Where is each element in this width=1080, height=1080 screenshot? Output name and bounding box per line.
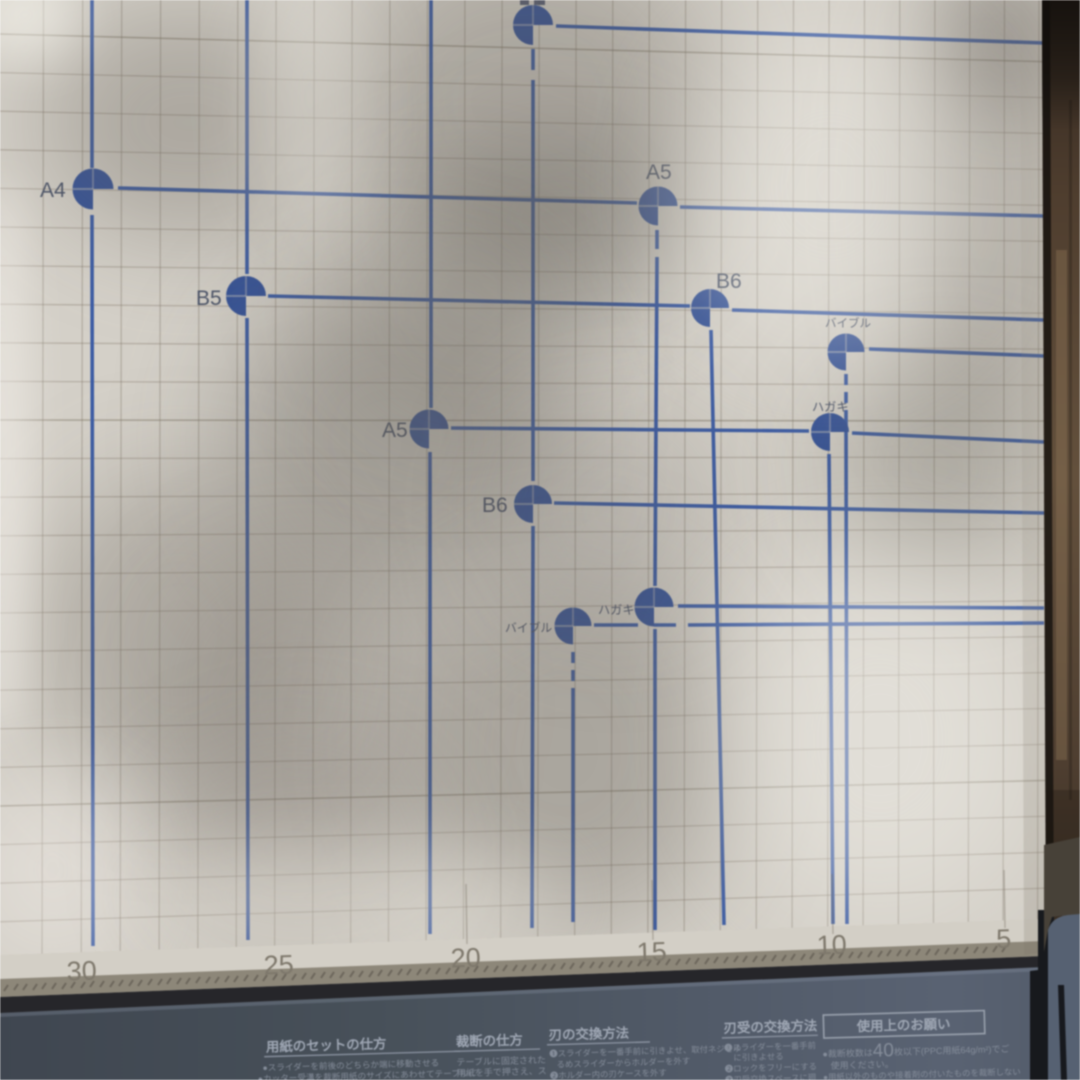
svg-text:刃受の交換方法: 刃受の交換方法: [723, 1017, 817, 1036]
svg-text:使用上のお願い: 使用上のお願い: [856, 1016, 951, 1035]
svg-text:刃の交換方法: 刃の交換方法: [548, 1025, 629, 1043]
svg-text:20: 20: [450, 942, 481, 973]
svg-text:15: 15: [636, 936, 667, 967]
svg-text:25: 25: [263, 949, 294, 980]
svg-text:に引きよせる: に引きよせる: [733, 1051, 784, 1062]
svg-text:用紙のセットの仕方: 用紙のセットの仕方: [266, 1035, 387, 1054]
svg-text:10: 10: [816, 929, 847, 960]
svg-text:5: 5: [996, 924, 1012, 955]
svg-text:裁断の仕方: 裁断の仕方: [456, 1031, 523, 1049]
svg-text:30: 30: [66, 955, 97, 986]
svg-text:使用ください。: 使用ください。: [831, 1058, 894, 1071]
